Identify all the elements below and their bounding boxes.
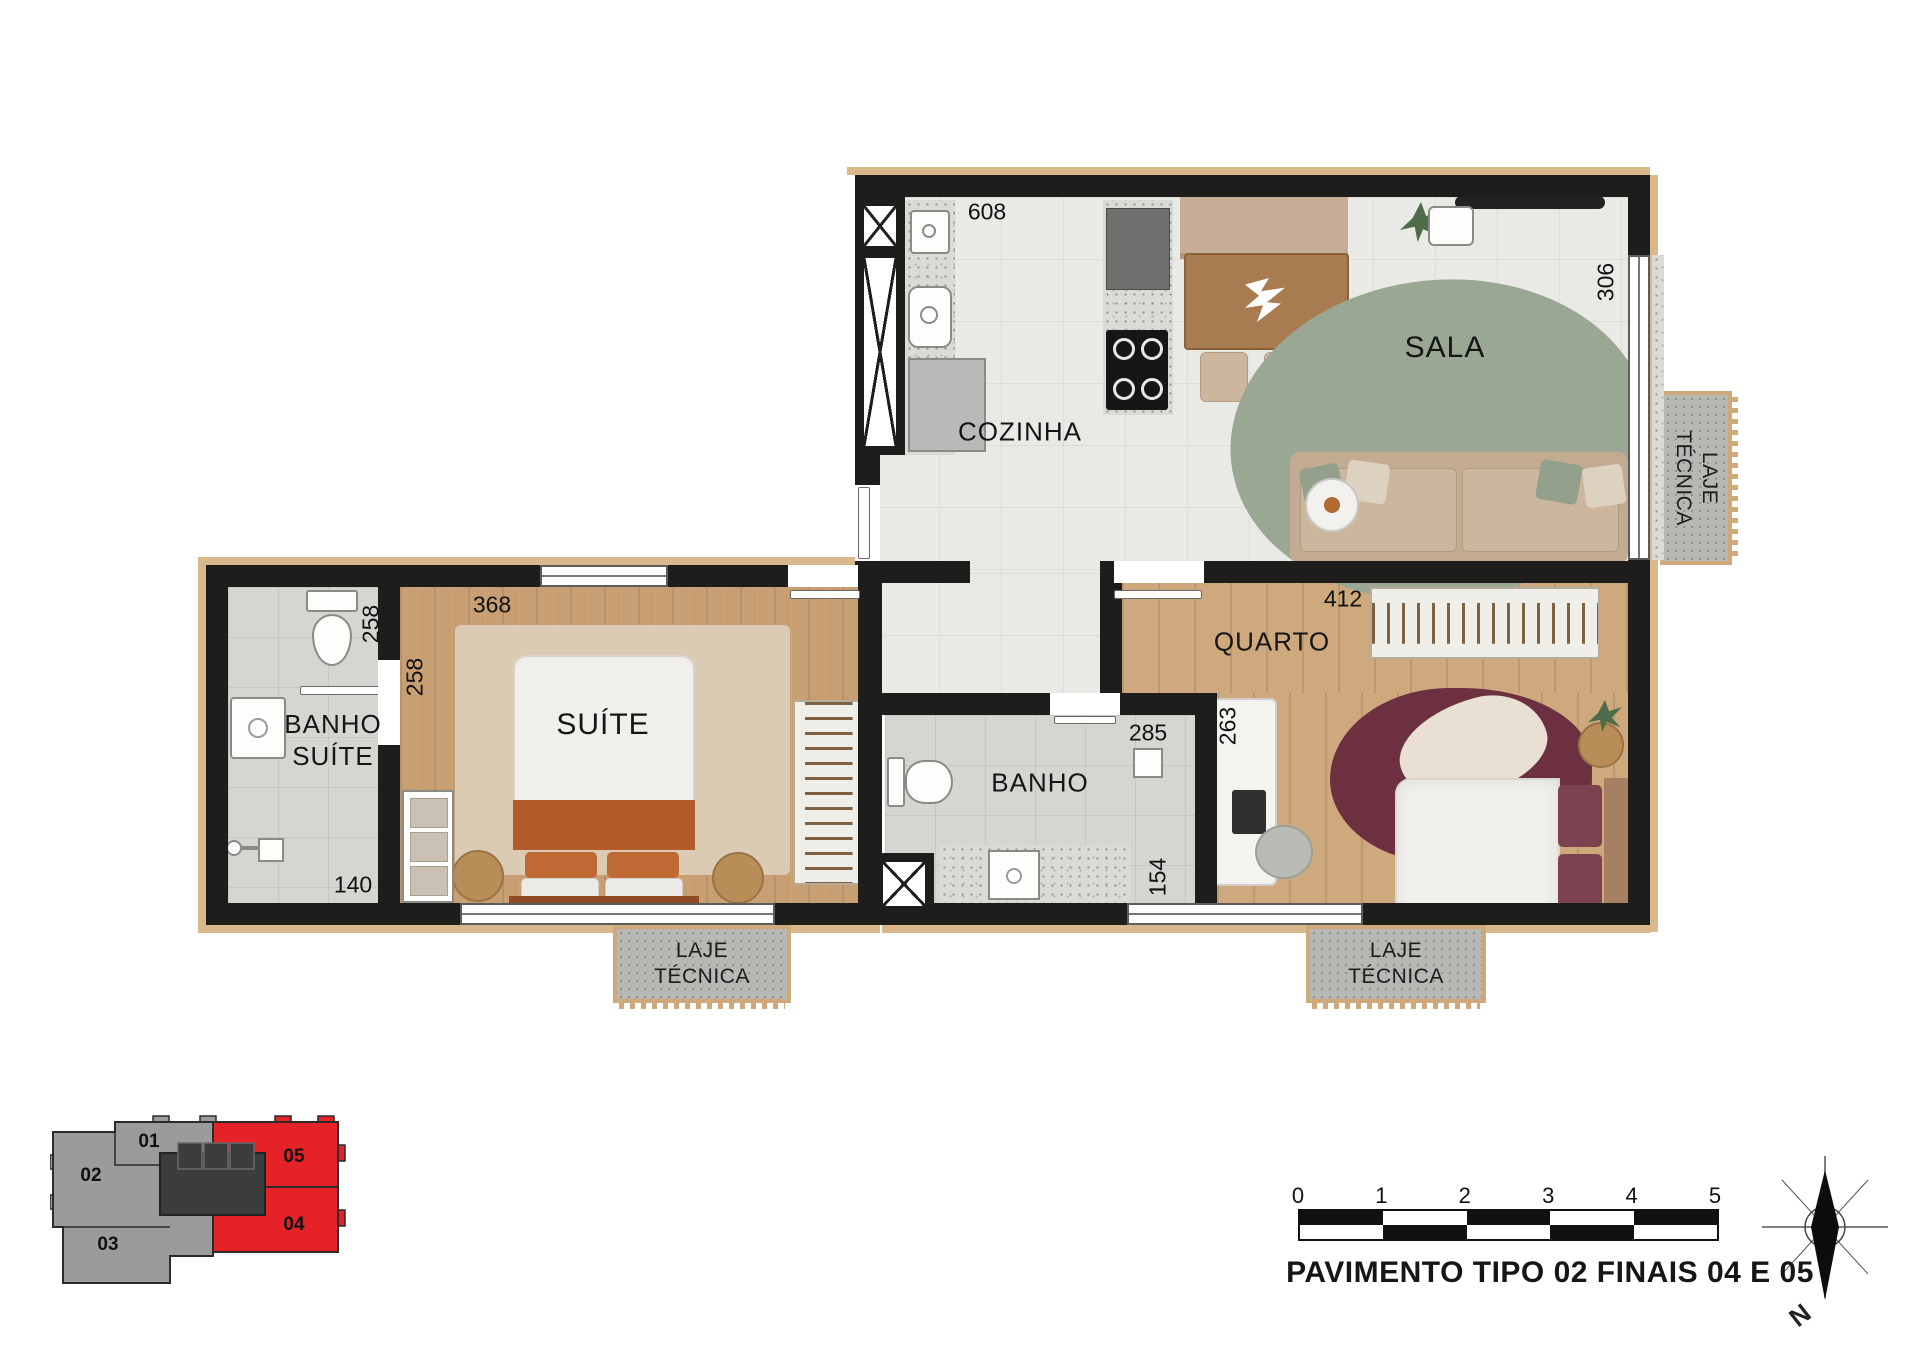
laptop-icon — [1232, 790, 1266, 834]
window-suite-top — [540, 565, 668, 587]
suite-bed-blanket — [513, 800, 695, 850]
laje-tecnica-label: LAJE TÉCNICA — [654, 938, 750, 990]
key-plan-notch — [338, 1210, 345, 1226]
toilet-tank-icon — [887, 757, 905, 807]
nightstand — [452, 850, 504, 902]
dining-stool — [1200, 352, 1248, 402]
basket-icon — [410, 798, 448, 828]
window-suite-bottom — [460, 903, 775, 925]
dim-suite-258-a: 258 — [358, 605, 385, 643]
slab-edge-leftwing-top — [198, 557, 863, 565]
scale-seg — [1467, 1211, 1550, 1225]
wall — [206, 565, 228, 925]
laje-tecnica-label: LAJE TÉCNICA — [1348, 938, 1444, 990]
scale-seg — [1383, 1211, 1466, 1225]
burner-icon — [1113, 338, 1135, 360]
burner-icon — [1141, 338, 1163, 360]
key-plan-unit-03: 03 — [97, 1234, 118, 1255]
window-quarto-bottom — [1127, 903, 1363, 925]
laje-tecnica-box-left: LAJE TÉCNICA — [613, 925, 791, 1003]
room-label-banho-suite-line1: BANHO — [284, 709, 381, 739]
key-plan-unit-02: 02 — [80, 1165, 101, 1186]
room-label-quarto: QUARTO — [1214, 627, 1330, 658]
wall — [882, 693, 1050, 715]
dim-banho-285: 285 — [1129, 720, 1167, 747]
suite-door-opening — [788, 565, 858, 587]
scale-seg — [1634, 1225, 1717, 1239]
tray-decor — [1428, 206, 1474, 246]
dim-sala-306: 306 — [1593, 263, 1620, 301]
kitchen-sink-drain-icon — [922, 224, 936, 238]
sofa-pillow — [1535, 459, 1583, 506]
toilet-tank-icon — [306, 590, 358, 612]
dim-quarto-263: 263 — [1215, 707, 1242, 745]
quarto-pillow — [1558, 785, 1602, 847]
scale-seg — [1383, 1225, 1466, 1239]
key-plan-notch — [338, 1145, 345, 1161]
burner-icon — [1113, 378, 1135, 400]
scale-tick-1: 1 — [1375, 1183, 1387, 1209]
kitchen-appliance-tower — [1106, 208, 1170, 290]
shaft-icon — [880, 859, 928, 909]
scale-seg — [1300, 1211, 1383, 1225]
compass-rose-icon: N — [1750, 1148, 1900, 1338]
laje-line2: TÉCNICA — [654, 965, 750, 988]
scale-tick-0: 0 — [1292, 1183, 1304, 1209]
candle-icon — [1324, 497, 1340, 513]
scale-seg — [1634, 1211, 1717, 1225]
sink-drain-icon — [1006, 868, 1022, 884]
slab-edge-bottom-right — [882, 925, 1650, 933]
laje-line1: LAJE — [676, 939, 728, 962]
slab-edge-left — [198, 557, 206, 933]
key-plan-core-cell — [178, 1143, 202, 1169]
room-label-banho: BANHO — [991, 768, 1088, 799]
basket-icon — [410, 832, 448, 862]
key-plan-unit-04: 04 — [283, 1214, 305, 1235]
door-leaf — [1054, 716, 1116, 724]
basket-icon — [410, 866, 448, 896]
door-leaf — [790, 590, 860, 599]
wall — [1204, 561, 1650, 583]
room-label-suite: SUÍTE — [556, 708, 649, 742]
window-sill — [1652, 255, 1664, 560]
dining-bench — [1180, 197, 1348, 259]
door-leaf — [300, 686, 380, 695]
suite-pillow — [525, 852, 597, 878]
scale-seg — [1300, 1225, 1383, 1239]
scale-seg — [1550, 1225, 1633, 1239]
sink-drain-icon — [248, 718, 268, 738]
window-sala — [1628, 255, 1650, 560]
dim-suite-258-b: 258 — [402, 658, 429, 696]
scale-seg — [1467, 1225, 1550, 1239]
key-plan-core-cell — [204, 1143, 228, 1169]
page-title: PAVIMENTO TIPO 02 FINAIS 04 E 05 — [1280, 1256, 1820, 1290]
shaft-icon — [861, 203, 899, 249]
scale-bar-row — [1300, 1211, 1717, 1225]
dim-suite-368: 368 — [473, 592, 511, 619]
scale-bar-row — [1300, 1225, 1717, 1239]
dim-quarto-412: 412 — [1324, 586, 1362, 613]
laje-line1: LAJE — [1370, 939, 1422, 962]
room-label-banho-suite-line2: SUÍTE — [292, 741, 374, 771]
scale-tick-4: 4 — [1625, 1183, 1637, 1209]
tv-icon — [1455, 196, 1605, 209]
wall — [855, 455, 880, 485]
scale-seg — [1550, 1211, 1633, 1225]
dim-cozinha-608: 608 — [968, 199, 1006, 226]
key-plan: 01 02 03 04 05 — [50, 1115, 350, 1295]
floor-plan-page: LAJE TÉCNICA LAJE TÉCNICA LAJE TÉCNICA — [0, 0, 1920, 1358]
room-label-sala: SALA — [1405, 331, 1486, 365]
key-plan-unit-01: 01 — [138, 1131, 160, 1152]
scale-tick-3: 3 — [1542, 1183, 1554, 1209]
scale-bar-body — [1298, 1209, 1719, 1241]
scale-tick-5: 5 — [1709, 1183, 1721, 1209]
door-leaf — [1114, 590, 1202, 599]
room-label-banho-suite: BANHO SUÍTE — [284, 708, 381, 772]
laje-tecnica-label: LAJE TÉCNICA — [1670, 430, 1722, 526]
plant-table — [1578, 722, 1624, 768]
nightstand — [712, 852, 764, 904]
shaft-icon — [861, 255, 899, 449]
wall — [855, 175, 1650, 197]
key-plan-unit-05: 05 — [283, 1146, 305, 1167]
scale-bar-ticks: 0 1 2 3 4 5 — [1298, 1183, 1715, 1209]
laje-line1: LAJE — [1698, 452, 1721, 504]
wall — [1628, 583, 1650, 925]
scale-bar: 0 1 2 3 4 5 — [1298, 1183, 1719, 1241]
slab-edge-top — [847, 167, 1650, 175]
suite-wardrobe — [793, 700, 865, 885]
quarto-door-opening — [1114, 561, 1204, 583]
sofa-pillow — [1581, 463, 1626, 508]
dim-banho-154: 154 — [1145, 858, 1172, 896]
banho-door-opening — [1050, 693, 1120, 715]
key-plan-core-cell — [230, 1143, 254, 1169]
kitchen-basin-drain-icon — [920, 306, 938, 324]
entry-door-leaf — [858, 487, 870, 559]
laje-tecnica-box-side: LAJE TÉCNICA — [1660, 391, 1732, 565]
toilet-bowl-icon — [905, 760, 953, 804]
dim-banho-suite-140: 140 — [334, 872, 372, 899]
scale-tick-2: 2 — [1459, 1183, 1471, 1209]
quarto-wardrobe — [1370, 587, 1600, 659]
shower-drain-icon — [258, 838, 284, 862]
compass-north-label: N — [1783, 1298, 1816, 1333]
laje-tecnica-box-right: LAJE TÉCNICA — [1306, 925, 1486, 1003]
room-label-cozinha: COZINHA — [958, 417, 1082, 448]
laje-line2: TÉCNICA — [1672, 430, 1695, 526]
burner-icon — [1141, 378, 1163, 400]
desk-chair — [1255, 825, 1313, 879]
shower-drain-icon — [1133, 748, 1163, 778]
laje-line2: TÉCNICA — [1348, 965, 1444, 988]
suite-pillow — [607, 852, 679, 878]
